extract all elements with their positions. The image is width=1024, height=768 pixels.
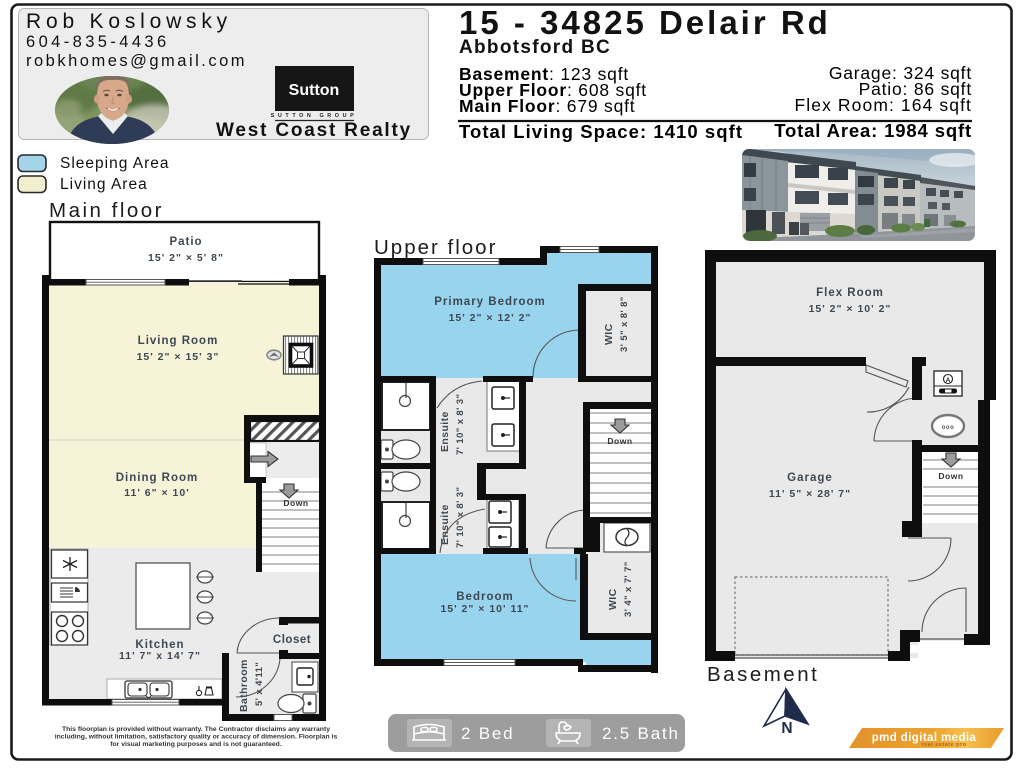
svg-text:Living Area: Living Area [60,176,148,193]
svg-text:Ensuite: Ensuite [439,411,451,452]
svg-text:2 Bed: 2 Bed [461,724,514,743]
svg-text:Basement: Basement [707,663,819,686]
svg-text:11' 6" × 10': 11' 6" × 10' [124,487,189,499]
svg-text:West Coast Realty: West Coast Realty [216,120,412,141]
svg-text:11' 5" × 28' 7": 11' 5" × 28' 7" [769,488,851,500]
svg-text:WIC: WIC [603,323,615,345]
svg-text:Total Living Space: 1410 sqft: Total Living Space: 1410 sqft [459,121,743,142]
svg-text:This floorplan is provided wit: This floorplan is provided without warra… [62,726,330,733]
svg-text:15 - 34825 Delair Rd: 15 - 34825 Delair Rd [459,4,831,41]
svg-text:N: N [781,720,792,737]
svg-text:3' 5" x 8' 8": 3' 5" x 8' 8" [619,296,630,352]
svg-text:Living Room: Living Room [138,335,219,347]
svg-text:real estate pro: real estate pro [921,742,966,748]
svg-text:ooo: ooo [942,425,955,431]
svg-text:604-835-4436: 604-835-4436 [26,33,170,51]
svg-text:Flex Room: 164 sqft: Flex Room: 164 sqft [795,95,973,115]
svg-text:Patio: Patio [169,236,202,248]
svg-text:A: A [946,377,951,384]
svg-text:Rob Koslowsky: Rob Koslowsky [26,10,232,33]
svg-text:15' 2" × 10' 2": 15' 2" × 10' 2" [809,303,892,315]
svg-text:Down: Down [938,471,963,481]
svg-text:Flex Room: Flex Room [816,287,884,299]
svg-text:Sutton: Sutton [289,82,340,99]
svg-text:15' 2" × 12' 2": 15' 2" × 12' 2" [449,312,532,324]
svg-text:Main floor: Main floor [49,199,164,222]
svg-text:Primary Bedroom: Primary Bedroom [434,296,546,308]
svg-text:Main Floor: 679 sqft: Main Floor: 679 sqft [459,96,635,116]
svg-text:Garage: Garage [787,472,833,484]
svg-text:robkhomes@gmail.com: robkhomes@gmail.com [26,52,247,70]
svg-text:11' 7" x 14' 7": 11' 7" x 14' 7" [119,650,201,662]
svg-text:15' 2" × 5' 8": 15' 2" × 5' 8" [148,252,224,264]
svg-text:SUTTON GROUP: SUTTON GROUP [271,113,358,119]
svg-text:7' 10" x 8' 3": 7' 10" x 8' 3" [455,394,466,455]
svg-text:Bathroom: Bathroom [238,659,250,712]
svg-text:Sleeping Area: Sleeping Area [60,155,170,172]
svg-text:WIC: WIC [607,588,619,610]
svg-text:2.5 Bath: 2.5 Bath [602,724,680,743]
svg-text:15' 2" × 10' 11": 15' 2" × 10' 11" [440,603,529,615]
svg-text:for visual marketing purposes: for visual marketing purposes and is not… [110,741,282,748]
svg-text:Ensuite: Ensuite [439,504,451,545]
svg-text:Bedroom: Bedroom [456,591,513,603]
svg-text:15' 2" × 15' 3": 15' 2" × 15' 3" [137,351,220,363]
svg-text:Closet: Closet [273,634,311,646]
svg-text:Total Area: 1984 sqft: Total Area: 1984 sqft [774,120,972,141]
svg-text:Upper floor: Upper floor [374,236,497,259]
svg-text:Down: Down [283,498,308,508]
svg-text:Dining Room: Dining Room [116,472,199,484]
svg-text:including, without limitation,: including, without limitation, satisfact… [55,734,338,741]
svg-text:5' x 4'11": 5' x 4'11" [254,662,265,706]
svg-text:Abbotsford BC: Abbotsford BC [459,37,611,58]
svg-text:Down: Down [607,436,632,446]
svg-text:3' 4" x 7' 7": 3' 4" x 7' 7" [623,561,634,617]
